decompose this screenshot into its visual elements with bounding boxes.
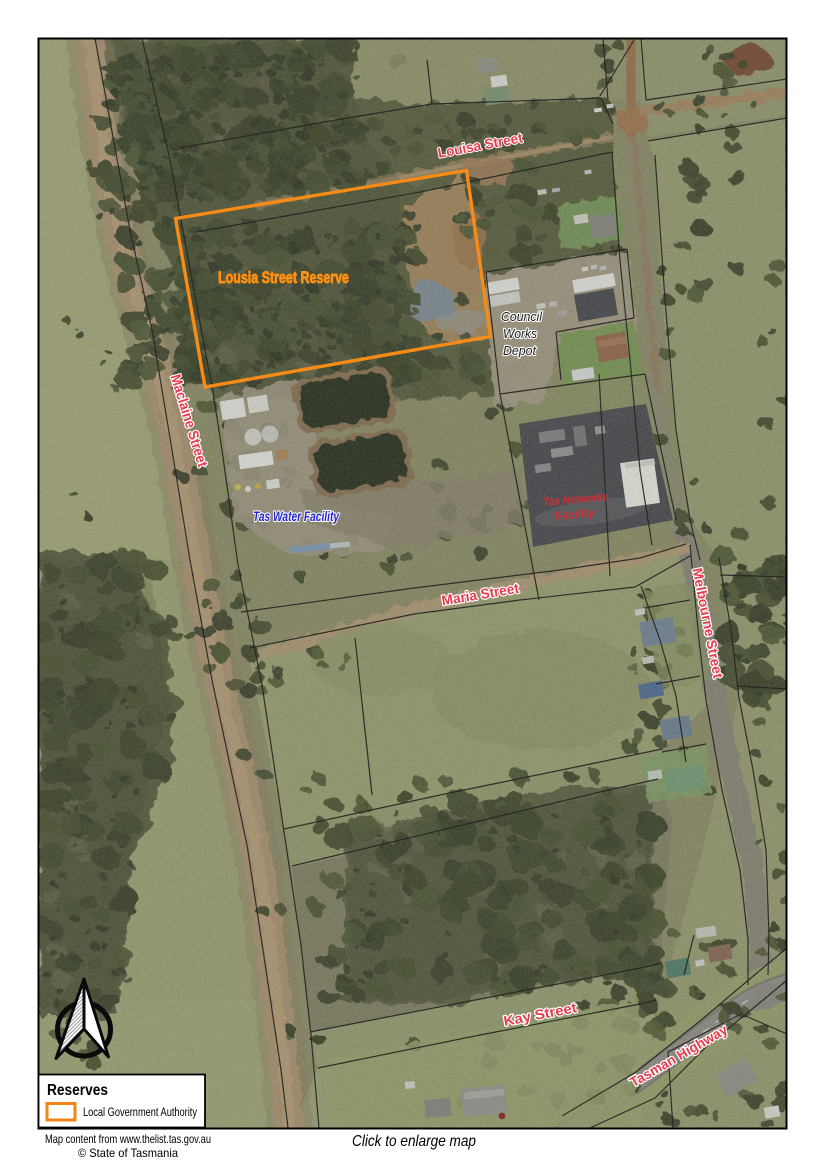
- svg-text:Reserves: Reserves: [47, 1082, 108, 1099]
- svg-text:Tas Water Facility: Tas Water Facility: [253, 509, 340, 524]
- svg-text:Local Government Authority: Local Government Authority: [83, 1105, 198, 1119]
- svg-text:© State of Tasmania: © State of Tasmania: [78, 1146, 178, 1160]
- svg-text:Lousia Street Reserve: Lousia Street Reserve: [218, 269, 349, 287]
- svg-text:Click to enlarge map: Click to enlarge map: [352, 1133, 476, 1150]
- svg-text:Depot: Depot: [503, 343, 537, 358]
- svg-text:Works: Works: [503, 326, 537, 341]
- svg-text:Council: Council: [501, 309, 543, 324]
- svg-text:Map content from www.thelist.t: Map content from www.thelist.tas.gov.au: [45, 1132, 211, 1146]
